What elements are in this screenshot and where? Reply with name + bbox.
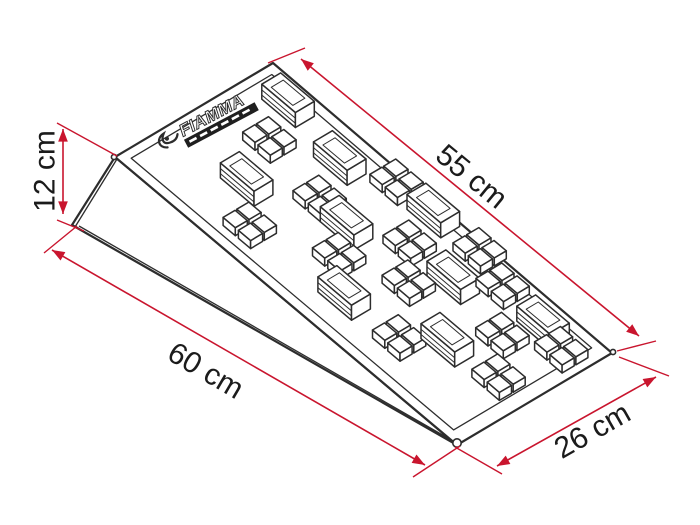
extension-line xyxy=(44,226,77,253)
dimension-label-width: 26 cm xyxy=(549,396,636,465)
extension-line xyxy=(619,357,669,376)
extension-line xyxy=(455,447,502,474)
ramp-drawing: FIAMMA xyxy=(72,63,616,447)
extension-line xyxy=(268,48,305,63)
dimension-label-base-length: 60 cm xyxy=(162,336,249,406)
diagram-canvas: FIAMMA 12 cm 55 cm xyxy=(0,0,700,525)
dimension-label-height: 12 cm xyxy=(29,130,62,212)
extension-line xyxy=(57,123,117,156)
extension-line xyxy=(617,341,656,351)
product-diagram: FIAMMA 12 cm 55 cm xyxy=(0,0,700,525)
corner-dot-right xyxy=(610,349,615,354)
